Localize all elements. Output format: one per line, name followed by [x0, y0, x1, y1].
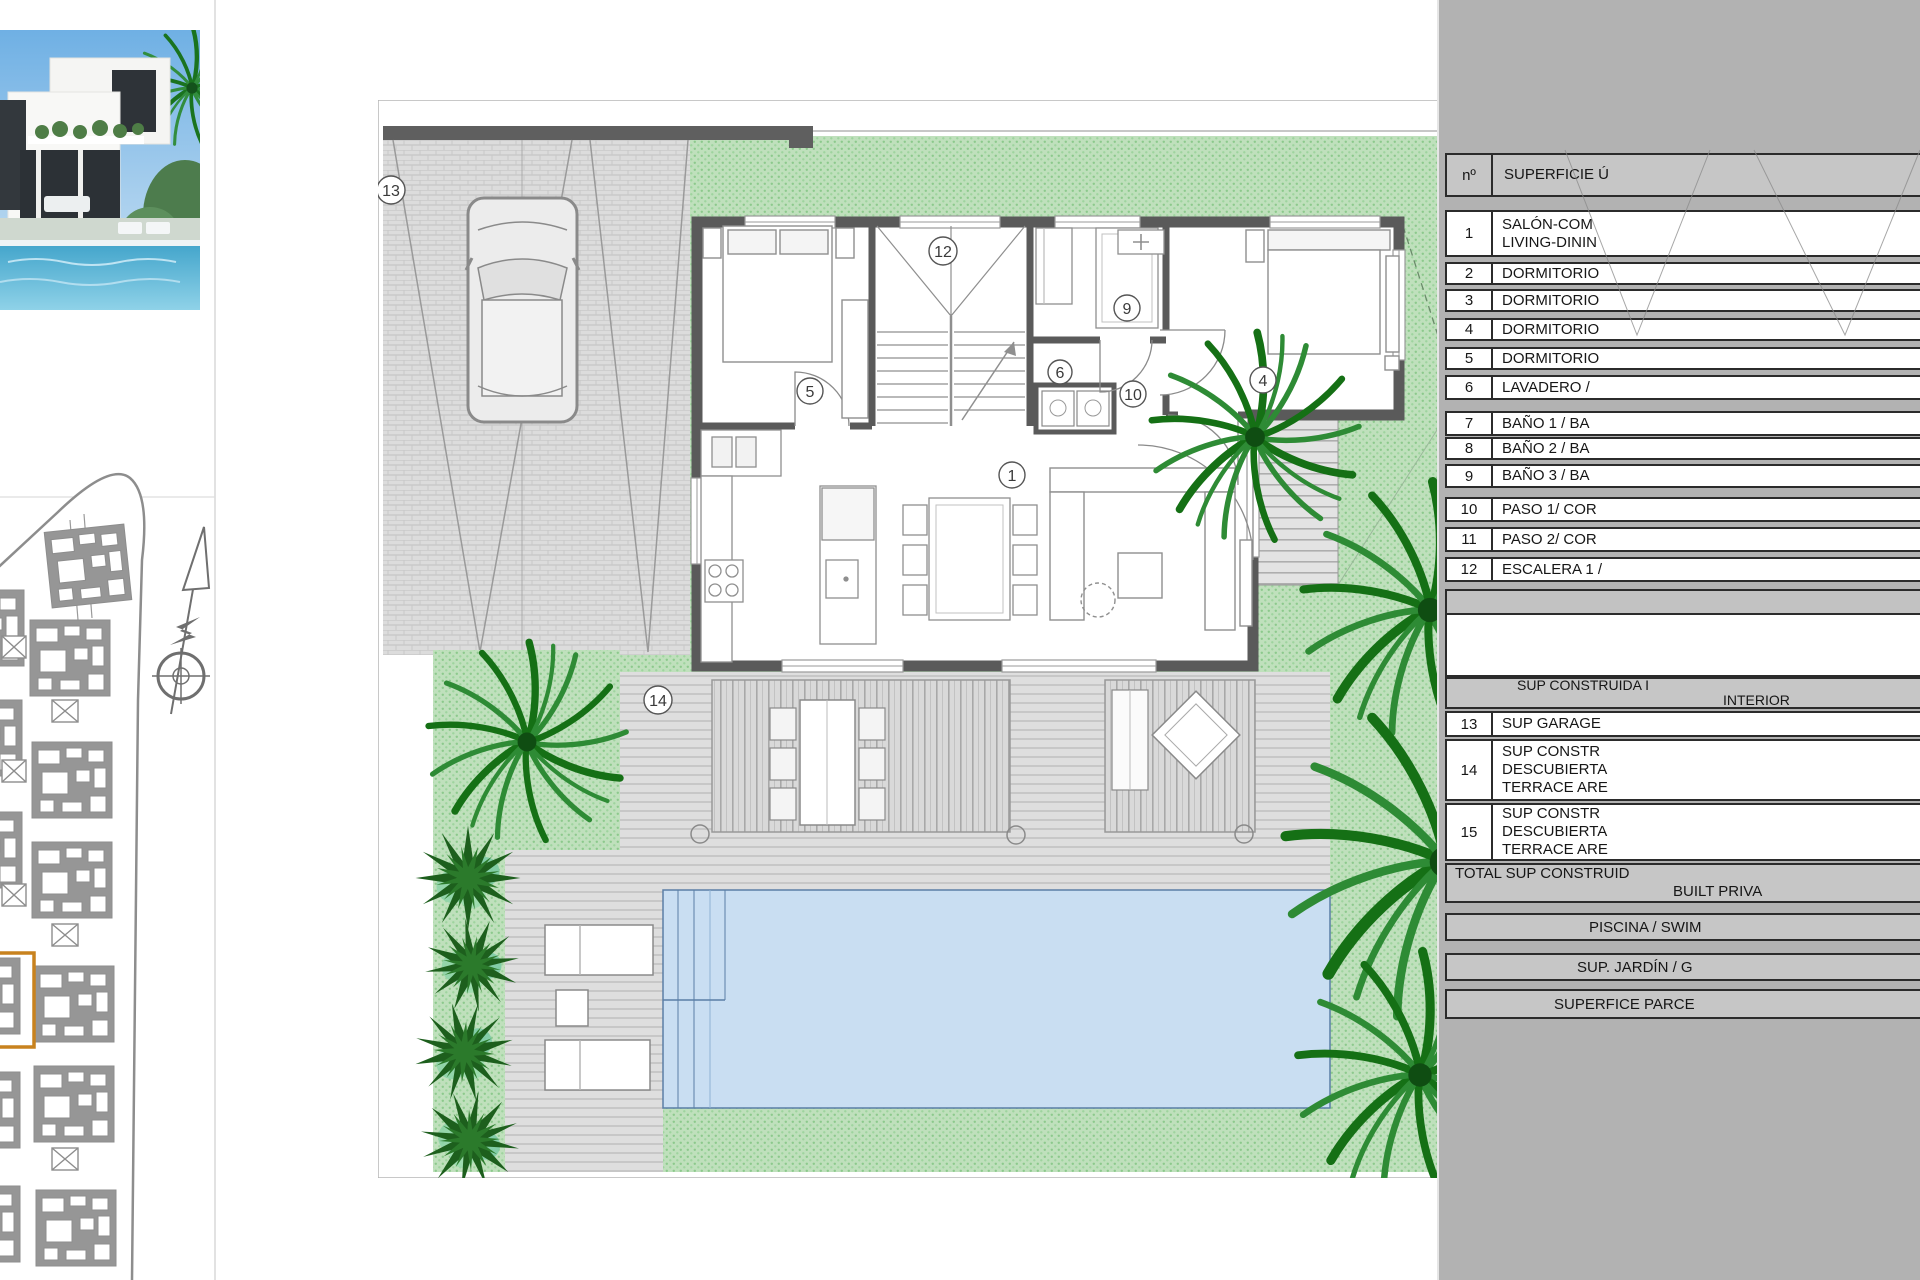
svg-text:13: 13 — [382, 183, 400, 200]
row-number: 1 — [1447, 212, 1493, 255]
table-row: 4 DORMITORIO — [1445, 318, 1920, 341]
total-line: TOTAL SUP CONSTRUID — [1447, 865, 1920, 883]
svg-text:1: 1 — [1008, 468, 1017, 485]
table-row: 15 SUP CONSTR DESCUBIERTA TERRACE ARE — [1445, 803, 1920, 861]
floor-plan: 13 12 5 9 6 10 4 1 14 — [377, 100, 1607, 1210]
plot-area-row: SUPERFICE PARCE — [1445, 989, 1920, 1019]
swimming-pool — [663, 890, 1330, 1108]
row-label-line: DORMITORIO — [1502, 321, 1920, 339]
row-label-line: TERRACE ARE — [1502, 841, 1920, 859]
row-number: 14 — [1447, 741, 1493, 799]
room-label: 14 — [644, 686, 672, 714]
surface-table-sidebar: nº SUPERFICIE Ú 1 SALÓN-COM LIVING-DININ… — [1437, 0, 1920, 1280]
site-plan — [0, 474, 144, 1280]
svg-text:14: 14 — [649, 693, 667, 710]
table-row: 11 PASO 2/ COR — [1445, 527, 1920, 552]
row-label-line: DORMITORIO — [1502, 265, 1920, 283]
car-icon — [466, 198, 579, 422]
svg-text:4: 4 — [1259, 373, 1268, 390]
row-number: 7 — [1447, 413, 1493, 434]
row-number: 10 — [1447, 499, 1493, 520]
deck-lounge — [1105, 680, 1255, 832]
row-label-line: PASO 1/ COR — [1502, 501, 1920, 519]
north-arrow-icon — [152, 527, 210, 714]
row-number: 4 — [1447, 320, 1493, 339]
table-row: 2 DORMITORIO — [1445, 262, 1920, 285]
table-row: 8 BAÑO 2 / BA — [1445, 437, 1920, 460]
summary-label: SUPERFICE PARCE — [1447, 997, 1920, 1012]
table-row: 10 PASO 1/ COR — [1445, 497, 1920, 522]
row-label-line: LAVADERO / — [1502, 379, 1920, 397]
total-line: BUILT PRIVA — [1447, 883, 1920, 901]
row-label-line: SALÓN-COM — [1502, 216, 1920, 234]
svg-text:6: 6 — [1056, 365, 1065, 382]
total-built-row: TOTAL SUP CONSTRUID BUILT PRIVA — [1445, 863, 1920, 903]
row-label-line: BAÑO 2 / BA — [1502, 440, 1920, 458]
row-label-line: BAÑO 1 / BA — [1502, 415, 1920, 433]
section-header-line: INTERIOR — [1447, 693, 1920, 708]
svg-text:12: 12 — [934, 244, 952, 261]
row-number: 13 — [1447, 713, 1493, 735]
row-number: 6 — [1447, 377, 1493, 398]
table-spacer-band — [1445, 589, 1920, 615]
row-label-line: SUP CONSTR — [1502, 805, 1920, 823]
garden-area-row: SUP. JARDÍN / G — [1445, 953, 1920, 981]
room-label: 9 — [1114, 295, 1140, 321]
built-area-section-header: SUP CONSTRUIDA I INTERIOR — [1445, 677, 1920, 709]
room-label: 12 — [929, 237, 957, 265]
row-number: 9 — [1447, 466, 1493, 486]
room-label: 4 — [1250, 367, 1276, 393]
row-number: 12 — [1447, 559, 1493, 580]
row-label: SALÓN-COM LIVING-DININ — [1493, 212, 1920, 255]
table-row: 9 BAÑO 3 / BA — [1445, 464, 1920, 488]
table-row: 6 LAVADERO / — [1445, 375, 1920, 400]
table-row: 7 BAÑO 1 / BA — [1445, 411, 1920, 436]
villa-photo — [0, 29, 251, 310]
row-number: 2 — [1447, 264, 1493, 283]
row-number: 5 — [1447, 349, 1493, 368]
table-row: 5 DORMITORIO — [1445, 347, 1920, 370]
table-header-number: nº — [1447, 155, 1493, 195]
room-label: 13 — [377, 176, 405, 204]
table-row: 3 DORMITORIO — [1445, 289, 1920, 312]
surface-table: nº SUPERFICIE Ú 1 SALÓN-COM LIVING-DININ… — [1445, 153, 1920, 1019]
summary-label: SUP. JARDÍN / G — [1447, 960, 1920, 975]
row-label-line: DORMITORIO — [1502, 350, 1920, 368]
row-label-line: DORMITORIO — [1502, 292, 1920, 310]
section-header-line: SUP CONSTRUIDA I — [1447, 678, 1920, 693]
deck-dining — [712, 680, 1010, 832]
pool-area-row: PISCINA / SWIM — [1445, 913, 1920, 941]
summary-label: PISCINA / SWIM — [1447, 920, 1920, 935]
bedroom4-furniture — [1246, 230, 1399, 370]
dining-set — [903, 498, 1037, 620]
row-number: 11 — [1447, 529, 1493, 550]
room-label: 10 — [1120, 381, 1146, 407]
svg-text:10: 10 — [1124, 387, 1142, 404]
room-label: 6 — [1048, 360, 1072, 384]
svg-text:9: 9 — [1123, 301, 1132, 318]
svg-text:5: 5 — [806, 384, 815, 401]
table-row: 12 ESCALERA 1 / — [1445, 557, 1920, 582]
row-number: 8 — [1447, 439, 1493, 458]
row-label-line: DESCUBIERTA — [1502, 823, 1920, 841]
table-header-title: SUPERFICIE Ú — [1493, 155, 1920, 195]
row-label-line: PASO 2/ COR — [1502, 531, 1920, 549]
row-label-line: BAÑO 3 / BA — [1502, 467, 1920, 485]
room-label: 1 — [999, 462, 1025, 488]
table-row: 14 SUP CONSTR DESCUBIERTA TERRACE ARE — [1445, 739, 1920, 801]
row-number: 15 — [1447, 805, 1493, 859]
room-label: 5 — [797, 378, 823, 404]
row-number: 3 — [1447, 291, 1493, 310]
table-row: 13 SUP GARAGE — [1445, 711, 1920, 737]
row-label-line: DESCUBIERTA — [1502, 761, 1920, 779]
row-label-line: SUP CONSTR — [1502, 743, 1920, 761]
row-label-line: SUP GARAGE — [1502, 715, 1920, 733]
row-label-line: TERRACE ARE — [1502, 779, 1920, 797]
architectural-plan-sheet: { "sheet": { "type": "villa-ground-floor… — [0, 0, 1920, 1280]
table-row: 1 SALÓN-COM LIVING-DININ — [1445, 210, 1920, 257]
table-header-row: nº SUPERFICIE Ú — [1445, 153, 1920, 197]
row-label-line: ESCALERA 1 / — [1502, 561, 1920, 579]
row-label-line: LIVING-DININ — [1502, 234, 1920, 252]
table-empty-row — [1445, 615, 1920, 677]
